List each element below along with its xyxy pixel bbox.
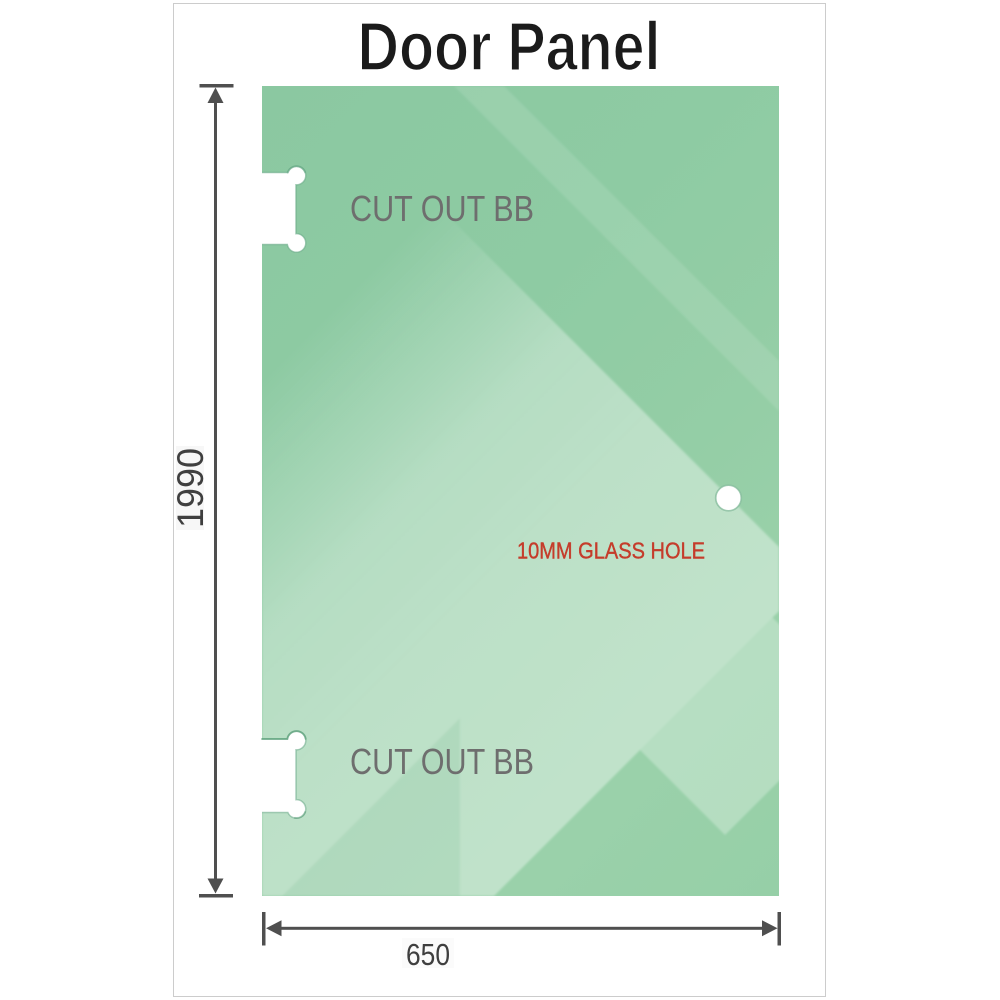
svg-text:Door Panel: Door Panel — [358, 8, 661, 85]
svg-text:1990: 1990 — [170, 448, 211, 528]
svg-text:CUT OUT BB: CUT OUT BB — [350, 742, 534, 782]
svg-text:650: 650 — [406, 937, 450, 972]
svg-text:10MM GLASS HOLE: 10MM GLASS HOLE — [517, 538, 705, 564]
svg-text:CUT OUT BB: CUT OUT BB — [350, 189, 534, 229]
